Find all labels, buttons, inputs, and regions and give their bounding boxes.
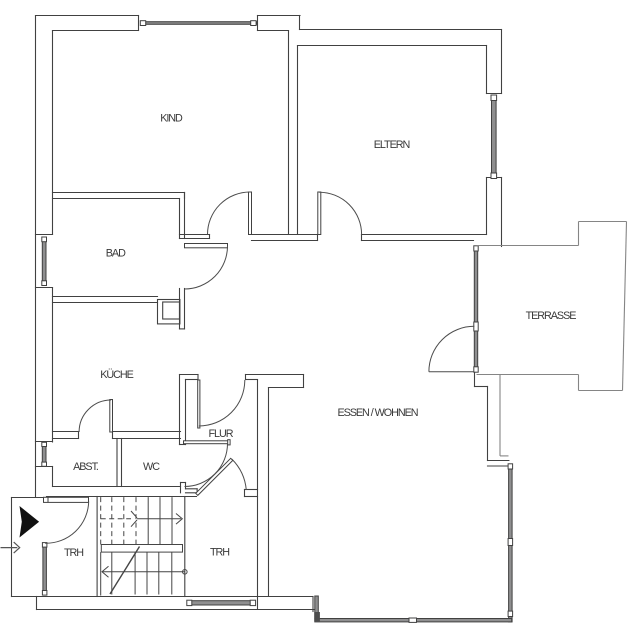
svg-text:TRH: TRH: [64, 547, 83, 559]
svg-text:KÜCHE: KÜCHE: [100, 369, 133, 381]
svg-text:FLUR: FLUR: [209, 428, 234, 440]
svg-text:KIND: KIND: [160, 113, 183, 125]
svg-text:TRH: TRH: [210, 547, 229, 559]
svg-text:ELTERN: ELTERN: [374, 139, 410, 151]
svg-text:ESSEN / WOHNEN: ESSEN / WOHNEN: [337, 407, 417, 419]
svg-text:WC: WC: [143, 461, 160, 473]
svg-text:TERRASSE: TERRASSE: [526, 310, 577, 322]
svg-text:ABST.: ABST.: [73, 461, 99, 473]
svg-text:BAD: BAD: [106, 248, 126, 260]
